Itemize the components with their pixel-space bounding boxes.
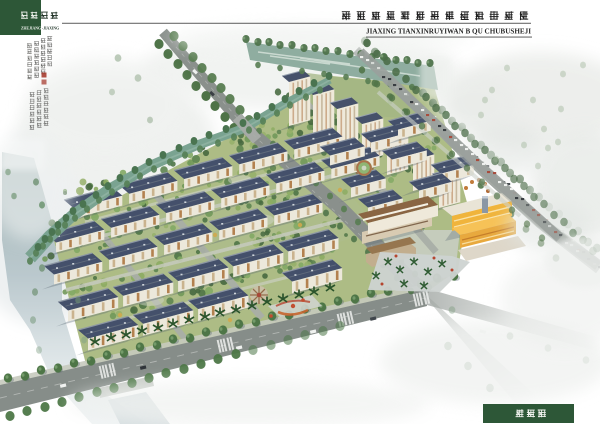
svg-text:ZHEJIANG: ZHEJIANG	[21, 26, 41, 31]
svg-text:·JIAXING: ·JIAXING	[42, 26, 59, 31]
svg-text:JIAXING TIANXINRUYIWAN B QU CH: JIAXING TIANXINRUYIWAN B QU CHUBUSHEJI	[366, 27, 531, 36]
